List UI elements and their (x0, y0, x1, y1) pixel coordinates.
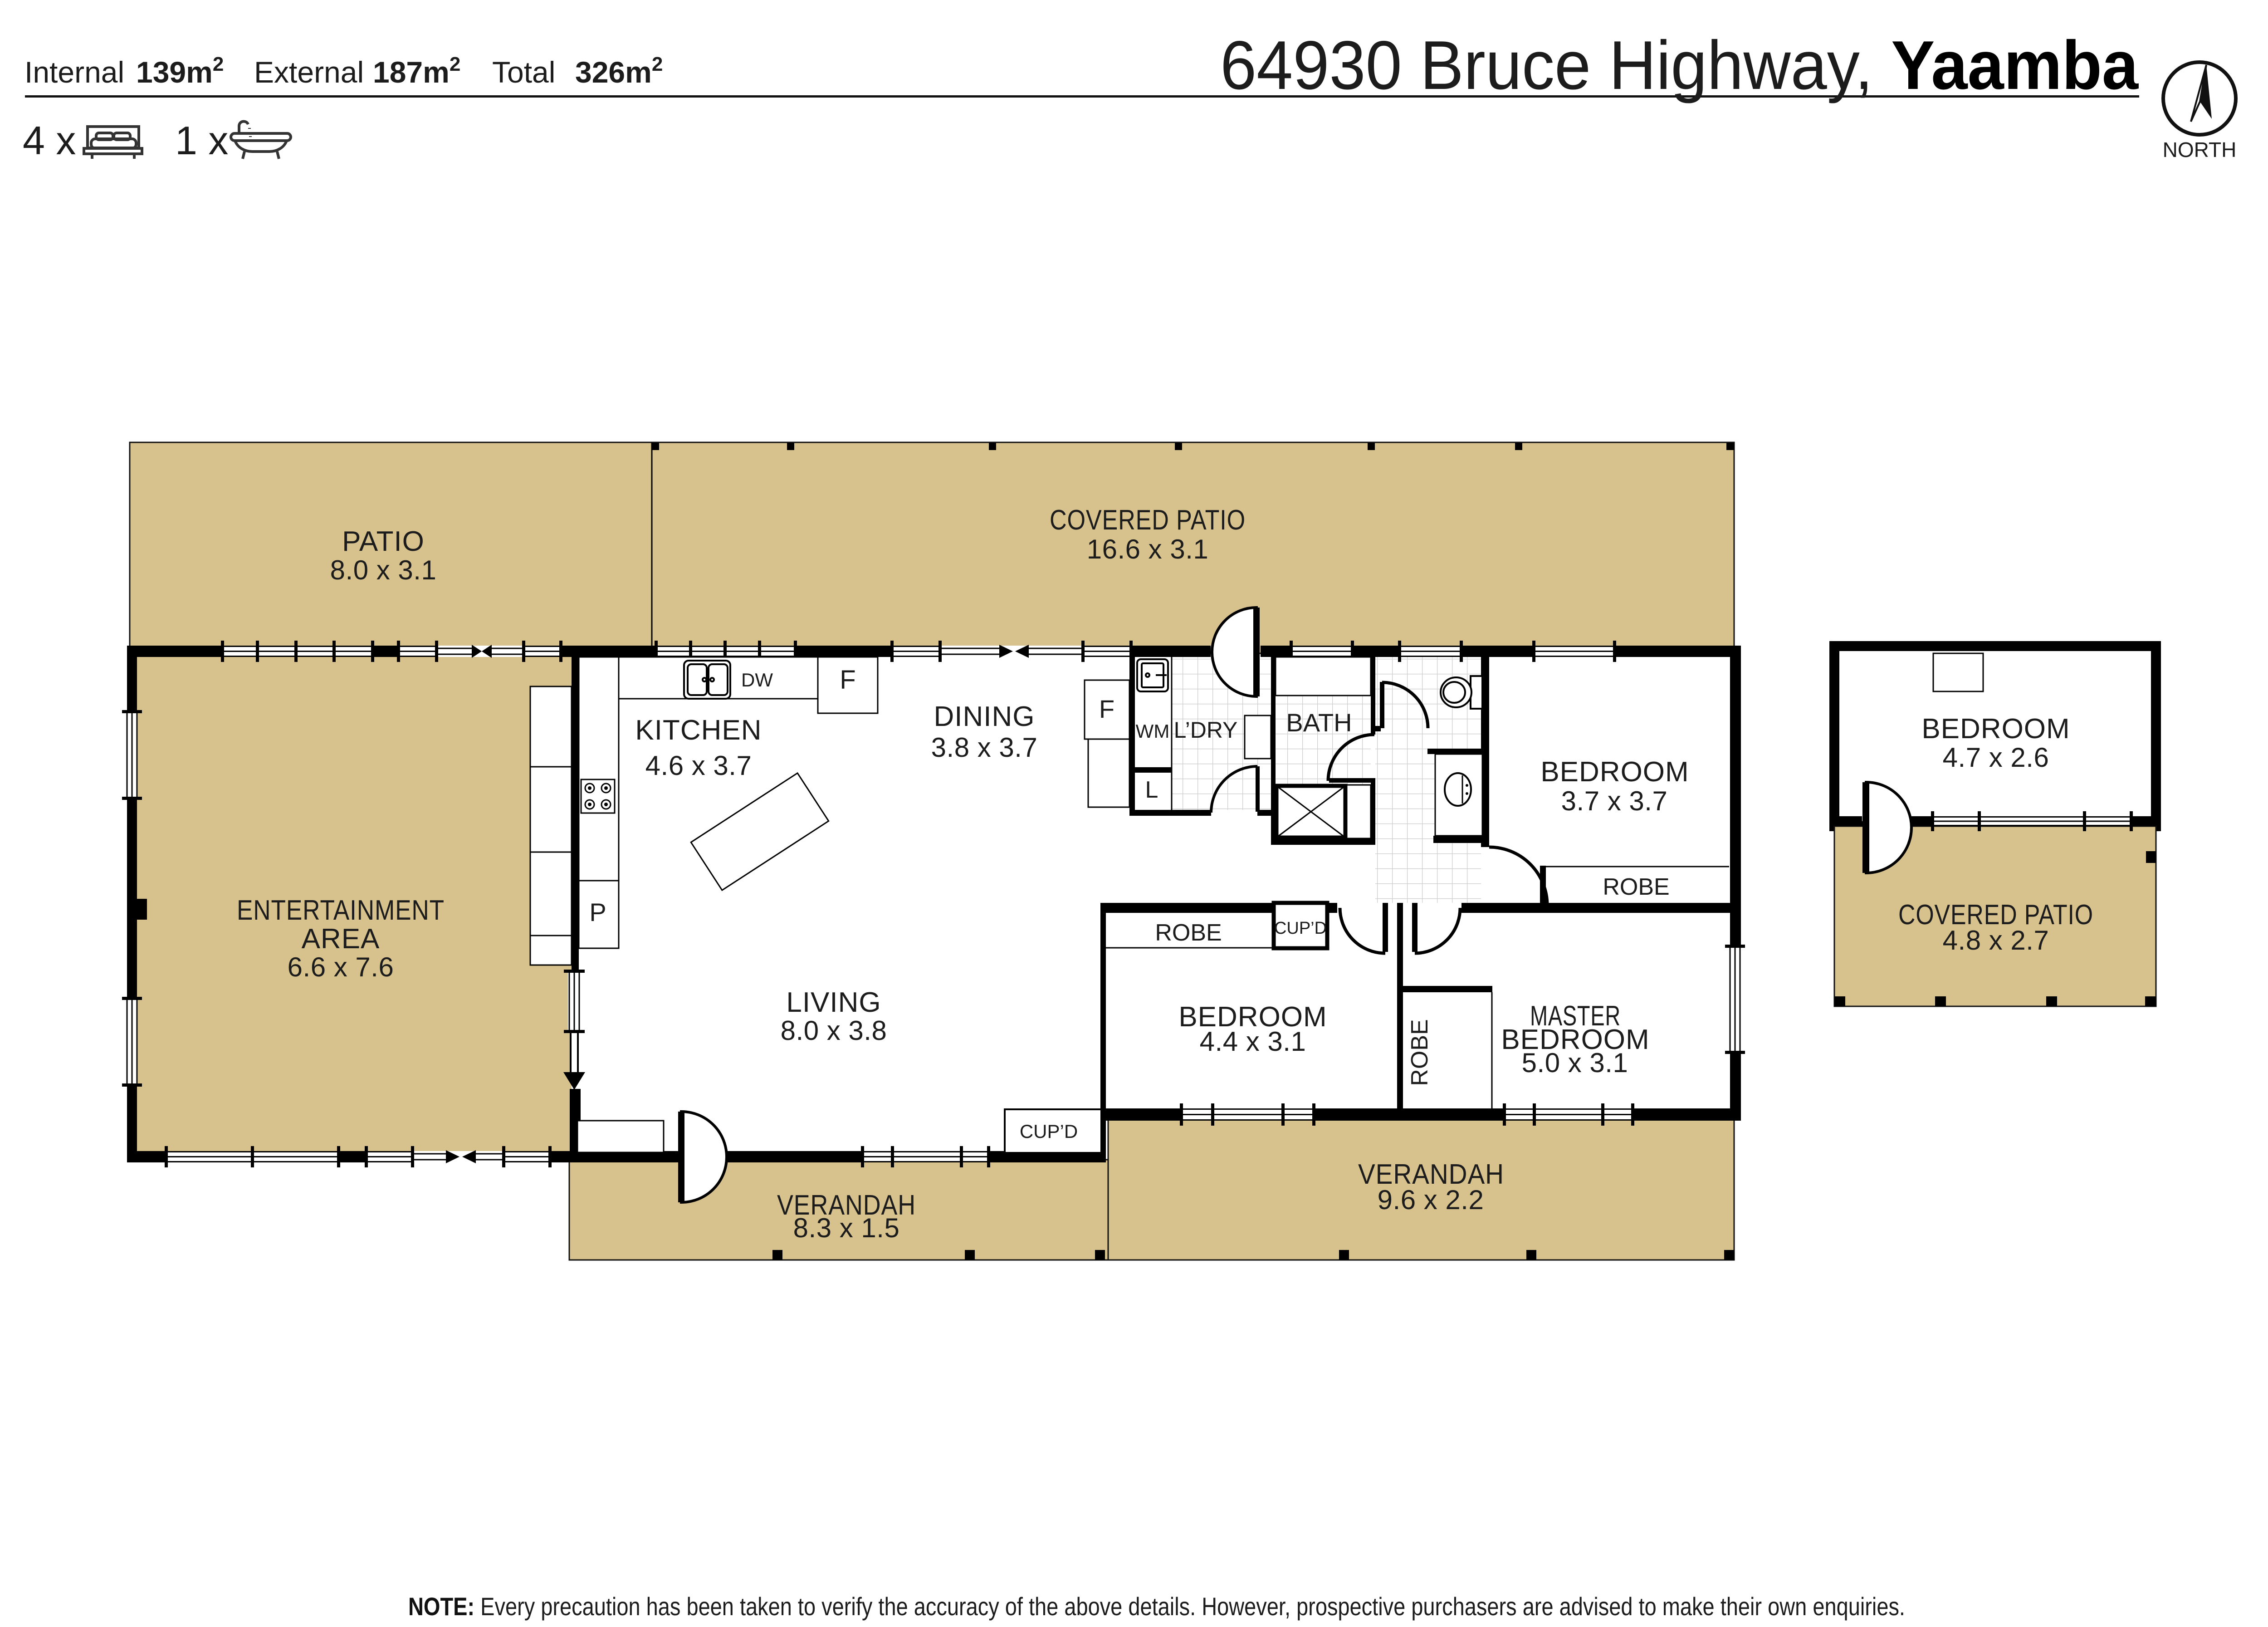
svg-text:4.4 x 3.1: 4.4 x 3.1 (1200, 1026, 1306, 1057)
svg-text:ROBE: ROBE (1603, 874, 1669, 900)
svg-text:187m2: 187m2 (373, 53, 460, 89)
svg-text:4.6 x 3.7: 4.6 x 3.7 (645, 750, 752, 781)
svg-text:PATIO: PATIO (342, 526, 425, 557)
svg-text:ENTERTAINMENT: ENTERTAINMENT (237, 895, 445, 926)
svg-text:BEDROOM: BEDROOM (1921, 713, 2070, 745)
svg-text:8.0 x 3.8: 8.0 x 3.8 (781, 1015, 887, 1046)
svg-text:1 x: 1 x (175, 118, 228, 163)
svg-text:F: F (1099, 695, 1114, 723)
svg-text:Internal: Internal (24, 55, 124, 89)
svg-text:8.0 x 3.1: 8.0 x 3.1 (330, 555, 437, 585)
svg-text:COVERED PATIO: COVERED PATIO (1050, 505, 1246, 536)
svg-text:CUP’D: CUP’D (1020, 1121, 1078, 1142)
svg-text:4.7 x 2.6: 4.7 x 2.6 (1943, 742, 2049, 773)
svg-text:3.8 x 3.7: 3.8 x 3.7 (931, 732, 1038, 763)
svg-text:LIVING: LIVING (786, 987, 881, 1018)
svg-text:4 x: 4 x (23, 118, 76, 163)
svg-text:External: External (254, 55, 364, 89)
svg-text:BATH: BATH (1286, 708, 1352, 737)
svg-text:8.3 x 1.5: 8.3 x 1.5 (793, 1213, 900, 1243)
svg-text:DINING: DINING (934, 701, 1035, 732)
svg-text:AREA: AREA (302, 923, 380, 955)
svg-text:BEDROOM: BEDROOM (1540, 756, 1689, 788)
svg-text:4.8 x 2.7: 4.8 x 2.7 (1943, 925, 2049, 956)
svg-text:L: L (1145, 777, 1158, 803)
svg-text:16.6 x 3.1: 16.6 x 3.1 (1087, 534, 1209, 564)
svg-text:KITCHEN: KITCHEN (635, 715, 762, 746)
svg-text:64930 Bruce Highway, Yaamba: 64930 Bruce Highway, Yaamba (1220, 27, 2139, 104)
svg-text:WM: WM (1136, 720, 1170, 742)
svg-text:326m2: 326m2 (575, 53, 663, 89)
svg-text:Total: Total (492, 55, 555, 89)
svg-text:F: F (840, 665, 855, 695)
svg-text:9.6 x 2.2: 9.6 x 2.2 (1378, 1185, 1484, 1215)
svg-text:NOTE: Every precaution has bee: NOTE: Every precaution has been taken to… (408, 1592, 1905, 1621)
svg-text:ROBE: ROBE (1407, 1019, 1433, 1086)
svg-text:ROBE: ROBE (1155, 920, 1222, 946)
svg-text:3.7 x 3.7: 3.7 x 3.7 (1561, 786, 1668, 816)
svg-text:DW: DW (741, 669, 773, 691)
svg-text:139m2: 139m2 (136, 53, 224, 89)
svg-text:CUP’D: CUP’D (1274, 919, 1327, 938)
svg-text:6.6 x 7.6: 6.6 x 7.6 (288, 952, 394, 982)
svg-text:NORTH: NORTH (2163, 138, 2237, 162)
svg-text:P: P (589, 898, 606, 926)
svg-text:5.0 x 3.1: 5.0 x 3.1 (1522, 1048, 1628, 1078)
svg-text:L’DRY: L’DRY (1174, 717, 1238, 743)
